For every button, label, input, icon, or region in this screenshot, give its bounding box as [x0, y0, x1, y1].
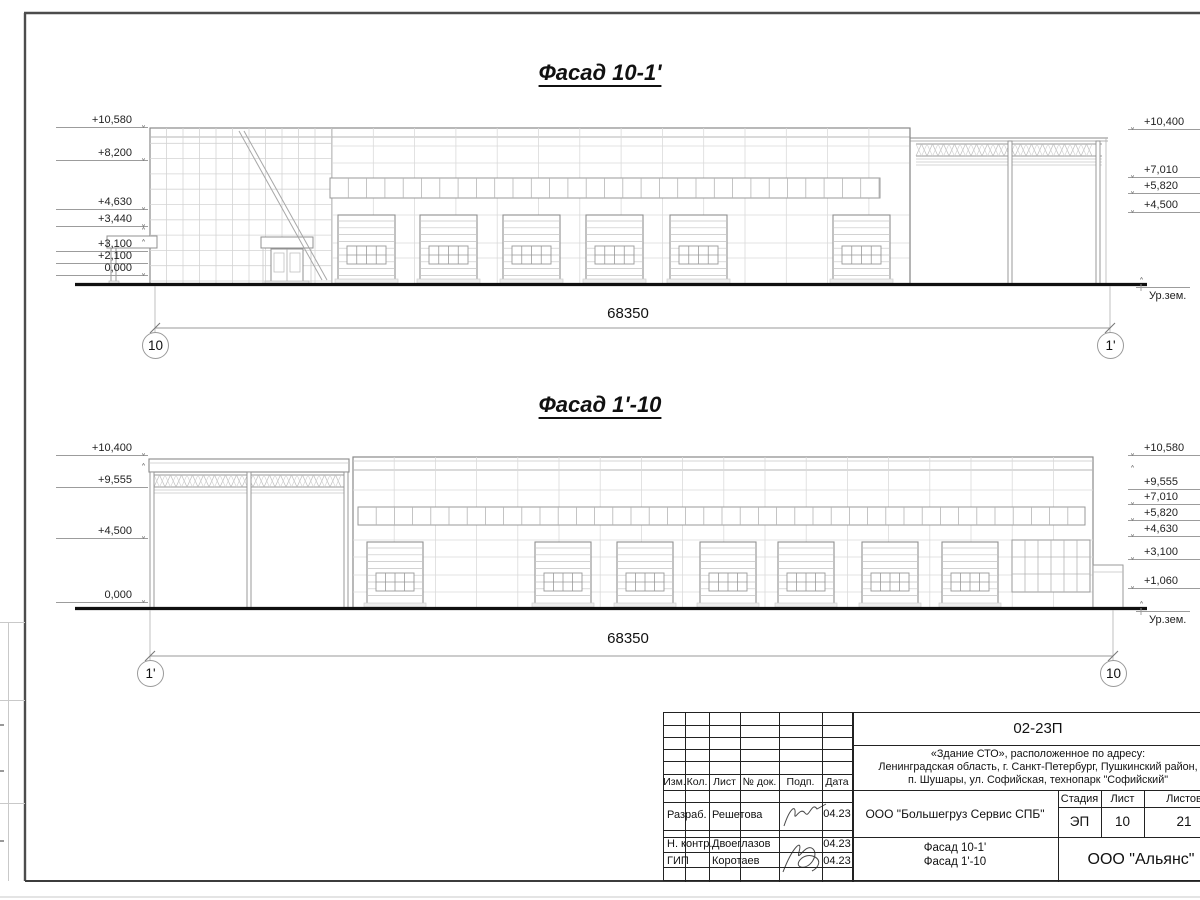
dimension-text: 68350 [528, 305, 728, 322]
elevation-value: +1,060 [1144, 575, 1178, 587]
elevation-value: +5,820 [1144, 507, 1178, 519]
stamp-date: 04.23 [822, 836, 852, 851]
elevation-arrow-icon: ˅ [1130, 536, 1135, 544]
stamp-line [664, 725, 852, 726]
sheet-edge-artifact [8, 622, 9, 881]
elevation-arrow-icon: ˅ [141, 455, 146, 463]
elevation-mark: 0,000˅ [56, 589, 148, 603]
stamp-role: Н. контр. [667, 838, 712, 850]
elevation-arrow-icon: ˅ [1130, 129, 1135, 137]
elevation-value: +10,400 [1144, 116, 1184, 128]
elevation-value: 0,000 [104, 262, 132, 274]
stamp-col-data: Дата [822, 774, 852, 790]
title-block: Изм. Кол. Лист № док. Подп. Дата Разраб.… [663, 712, 1200, 881]
elevation-mark: +3,100˅ [1128, 546, 1200, 560]
elevation-mark: +10,580˅ [56, 114, 148, 128]
elevation-value: +3,100 [98, 238, 132, 250]
elevation-arrow-icon: ˅ [141, 538, 146, 546]
stamp-sheets-header: Листов [1144, 791, 1200, 806]
elevation-mark: +5,820˅ [1128, 180, 1200, 194]
stamp-line [709, 713, 710, 882]
dimension-text: 68350 [528, 630, 728, 647]
sheet-edge-artifact [0, 700, 25, 701]
axis-bubble: 1' [1097, 332, 1124, 359]
elevation-mark: +10,580˅ [1128, 442, 1200, 456]
elevation-value: +5,820 [1144, 180, 1178, 192]
stamp-doc-number: 02-23П [852, 713, 1200, 745]
axis-bubble: 10 [1100, 660, 1127, 687]
stamp-name: Двоеглазов [712, 838, 770, 850]
elevation-arrow-icon: ˅ [141, 275, 146, 283]
elevation-arrow-icon: ˄ [1130, 467, 1135, 475]
stamp-stage-header: Стадия [1058, 791, 1101, 806]
elevation-mark: +4,500˅ [1128, 199, 1200, 213]
elevation-mark: +4,500˅ [56, 525, 148, 539]
elevation-value: +3,100 [1144, 546, 1178, 558]
elevation-arrow-icon: ˅ [141, 160, 146, 168]
elevation-mark: +9,555˄ [56, 474, 148, 488]
stamp-date: 04.23 [822, 853, 852, 868]
ground-level-text: Ур.зем. [1149, 290, 1186, 302]
elevation-value: +10,580 [1144, 442, 1184, 454]
stamp-object-line: п. Шушары, ул. Софийская, технопарк "Соф… [852, 773, 1200, 786]
sheet-edge-artifact [0, 770, 4, 772]
stamp-line [664, 737, 852, 738]
stamp-col-izm: Изм. [664, 774, 685, 790]
stamp-stage-value: ЭП [1058, 807, 1101, 837]
stamp-object-line: «Здание СТО», расположенное по адресу: [852, 747, 1200, 760]
axis-bubble: 1' [137, 660, 164, 687]
elevation-value: +10,400 [92, 442, 132, 454]
elevation-value: +3,440 [98, 213, 132, 225]
elevation-mark: +4,630˅ [56, 196, 148, 210]
stamp-drawing-title: Фасад 1'-10 [854, 855, 1056, 869]
sheet-edge-artifact [0, 622, 25, 623]
elevation-value: +2,100 [98, 250, 132, 262]
elevation-mark: +8,200˅ [56, 147, 148, 161]
elevation-value: +4,500 [1144, 199, 1178, 211]
facade-bottom-title: Фасад 1'-10 [420, 392, 780, 418]
elevation-arrow-icon: ˄ [1139, 603, 1144, 611]
stamp-company: ООО "Альянс" [1058, 837, 1200, 882]
elevation-mark: +5,820˅ [1128, 507, 1200, 521]
stamp-sheet-value: 10 [1101, 807, 1144, 837]
elevation-mark: +10,400˅ [1128, 116, 1200, 130]
elevation-value: 0,000 [104, 589, 132, 601]
elevation-arrow-icon: ˄ [1139, 279, 1144, 287]
elevation-mark: +3,440˅ [56, 213, 148, 227]
elevation-value: +9,555 [1144, 476, 1178, 488]
stamp-col-podp: Подп. [779, 774, 822, 790]
stamp-col-doc: № док. [740, 774, 779, 790]
elevation-arrow-icon: ˅ [1130, 455, 1135, 463]
elevation-arrow-icon: ˅ [141, 602, 146, 610]
elevation-mark: +10,400˅ [56, 442, 148, 456]
sheet-edge-artifact [0, 724, 4, 726]
stamp-name: Коротаев [712, 855, 760, 867]
elevation-value: +7,010 [1144, 164, 1178, 176]
elevation-value: +7,010 [1144, 491, 1178, 503]
elevation-mark: +7,010˅ [1128, 164, 1200, 178]
sheet-edge-artifact [0, 840, 4, 842]
stamp-drawing-title: Фасад 10-1' [854, 841, 1056, 855]
ground-level-text: Ур.зем. [1149, 614, 1186, 626]
stamp-line [664, 761, 852, 762]
stamp-role: ГИП [667, 855, 689, 867]
stamp-name: Решетова [712, 809, 762, 821]
elevation-arrow-icon: ˄ [141, 241, 146, 249]
elevation-mark: +7,010˅ [1128, 491, 1200, 505]
stamp-col-kol: Кол. [685, 774, 709, 790]
stamp-date: 04.23 [822, 806, 852, 822]
stamp-line [664, 749, 852, 750]
elevation-arrow-icon: ˅ [141, 127, 146, 135]
elevation-mark: +4,630˅ [1128, 523, 1200, 537]
elevation-arrow-icon: ˄ [141, 229, 146, 237]
stamp-line [664, 830, 852, 831]
stamp-role: Разраб. [667, 809, 707, 821]
elevation-arrow-icon: ˅ [1130, 212, 1135, 220]
elevation-mark: 0,000˅ [56, 262, 148, 276]
ground-level-label: ˄Ур.зем. [1136, 287, 1190, 302]
elevation-arrow-icon: ˅ [1130, 559, 1135, 567]
stamp-line [779, 713, 780, 882]
elevation-value: +10,580 [92, 114, 132, 126]
elevation-arrow-icon: ˅ [1130, 588, 1135, 596]
stamp-line [664, 802, 852, 803]
elevation-value: +4,630 [1144, 523, 1178, 535]
stamp-col-list: Лист [709, 774, 740, 790]
stamp-sheet-header: Лист [1101, 791, 1144, 806]
elevation-value: +4,500 [98, 525, 132, 537]
stamp-client: ООО "Большегруз Сервис СПБ" [854, 792, 1056, 835]
elevation-arrow-icon: ˄ [141, 465, 146, 473]
elevation-value: +9,555 [98, 474, 132, 486]
elevation-mark: +1,060˅ [1128, 575, 1200, 589]
elevation-value: +4,630 [98, 196, 132, 208]
stamp-object-line: Ленинградская область, г. Санкт-Петербур… [852, 760, 1200, 773]
axis-bubble: 10 [142, 332, 169, 359]
elevation-mark: +9,555˄ [1128, 476, 1200, 490]
stamp-line [664, 790, 852, 791]
stamp-sheets-value: 21 [1144, 807, 1200, 837]
facade-top-title: Фасад 10-1' [420, 60, 780, 86]
ground-level-label: ˄Ур.зем. [1136, 611, 1190, 626]
elevation-value: +8,200 [98, 147, 132, 159]
sheet-edge-artifact [0, 803, 25, 804]
